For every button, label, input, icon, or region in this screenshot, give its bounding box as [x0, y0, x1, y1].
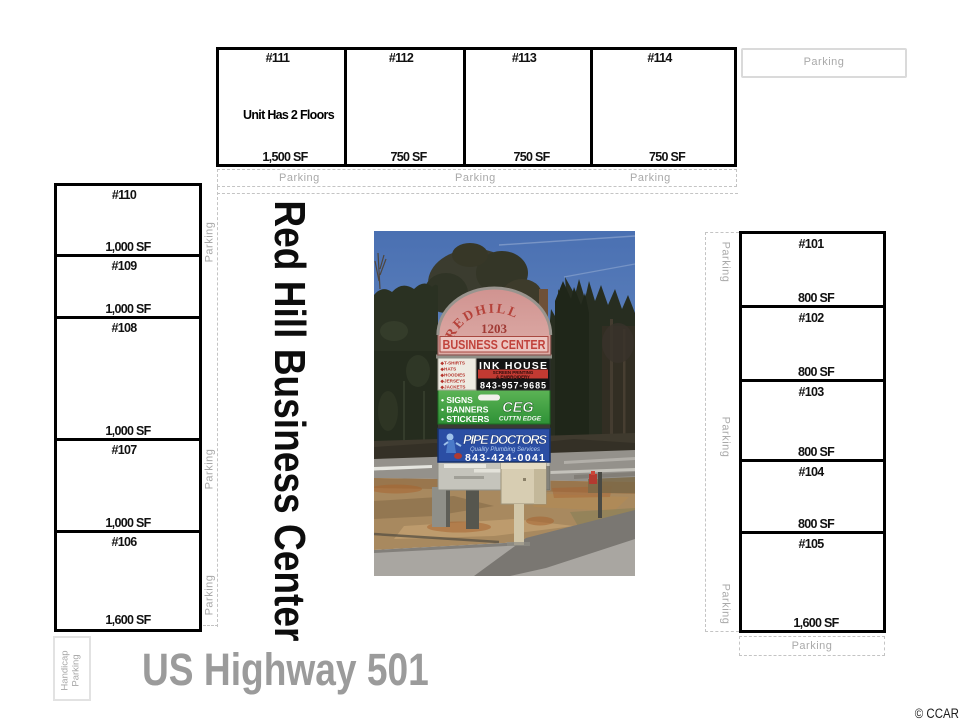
svg-text:◆JERSEYS: ◆JERSEYS — [440, 379, 466, 384]
svg-text:• STICKERS: • STICKERS — [441, 414, 490, 424]
svg-text:• SIGNS: • SIGNS — [441, 395, 473, 405]
svg-text:◆T-SHIRTS: ◆T-SHIRTS — [440, 361, 465, 366]
svg-text:BUSINESS CENTER: BUSINESS CENTER — [443, 337, 546, 352]
svg-text:& EMBROIDERY: & EMBROIDERY — [496, 374, 530, 379]
svg-text:843-957-9685: 843-957-9685 — [480, 381, 546, 391]
svg-text:• BANNERS: • BANNERS — [441, 405, 489, 415]
svg-text:843-424-0041: 843-424-0041 — [465, 452, 545, 464]
svg-text:◆JACKETS: ◆JACKETS — [440, 385, 466, 390]
svg-text:CEG: CEG — [502, 400, 533, 416]
svg-text:PIPE DOCTORS: PIPE DOCTORS — [463, 432, 547, 447]
svg-text:1203: 1203 — [481, 321, 508, 336]
svg-text:◆HOODIES: ◆HOODIES — [440, 373, 466, 378]
svg-text:◆HATS: ◆HATS — [440, 367, 457, 372]
svg-text:CUTTN EDGE: CUTTN EDGE — [499, 416, 542, 423]
